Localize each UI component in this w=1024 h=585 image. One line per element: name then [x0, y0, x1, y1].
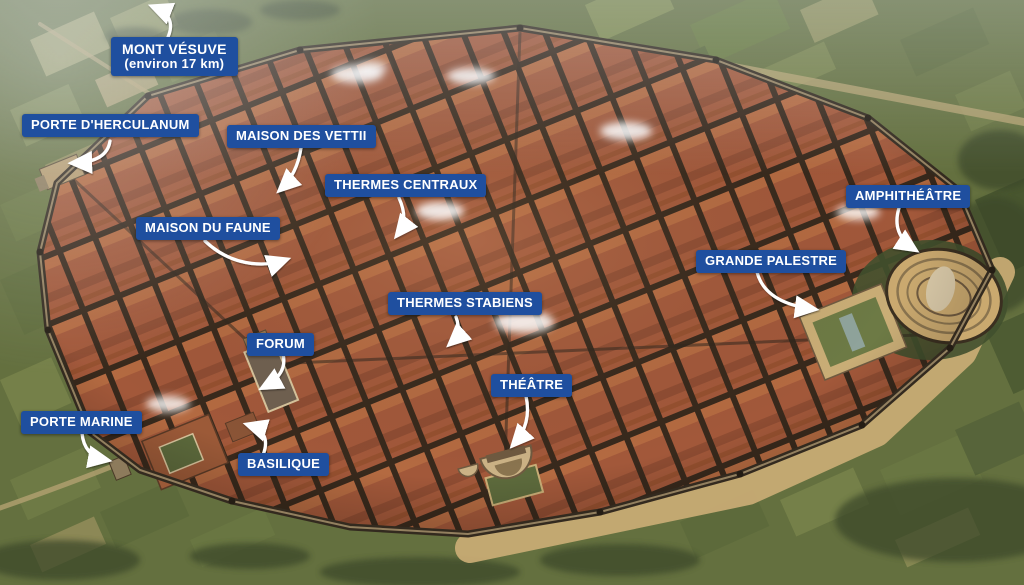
label-text: MONT VÉSUVE — [122, 41, 227, 57]
label-subtext: (environ 17 km) — [122, 57, 227, 72]
label-text: THERMES CENTRAUX — [334, 178, 477, 193]
label-text: MAISON DES VETTII — [236, 129, 367, 144]
label-text: GRANDE PALESTRE — [705, 254, 837, 269]
label-text: PORTE MARINE — [30, 415, 133, 430]
label-amphitheatre: AMPHITHÉÂTRE — [846, 185, 970, 208]
label-text: THÉÂTRE — [500, 378, 563, 393]
label-mont-vesuve: MONT VÉSUVE (environ 17 km) — [111, 37, 238, 76]
label-text: THERMES STABIENS — [397, 296, 533, 311]
label-text: PORTE D'HERCULANUM — [31, 118, 190, 133]
label-porte-herculanum: PORTE D'HERCULANUM — [22, 114, 199, 137]
label-maison-des-vettii: MAISON DES VETTII — [227, 125, 376, 148]
label-text: FORUM — [256, 337, 305, 352]
label-maison-du-faune: MAISON DU FAUNE — [136, 217, 280, 240]
label-forum: FORUM — [247, 333, 314, 356]
label-text: AMPHITHÉÂTRE — [855, 189, 961, 204]
label-text: MAISON DU FAUNE — [145, 221, 271, 236]
label-theatre: THÉÂTRE — [491, 374, 572, 397]
label-thermes-stabiens: THERMES STABIENS — [388, 292, 542, 315]
label-grande-palestre: GRANDE PALESTRE — [696, 250, 846, 273]
label-porte-marine: PORTE MARINE — [21, 411, 142, 434]
label-thermes-centraux: THERMES CENTRAUX — [325, 174, 486, 197]
pompeii-illustrated-map: MONT VÉSUVE (environ 17 km) PORTE D'HERC… — [0, 0, 1024, 585]
label-basilique: BASILIQUE — [238, 453, 329, 476]
label-text: BASILIQUE — [247, 457, 320, 472]
